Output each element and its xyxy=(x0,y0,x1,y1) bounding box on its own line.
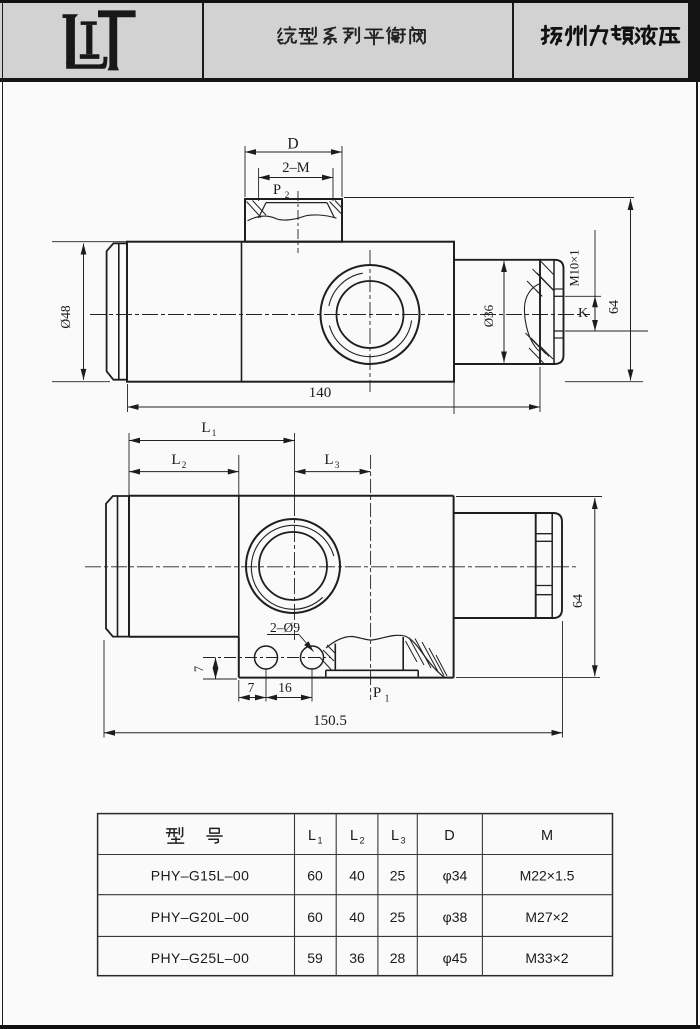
svg-text:28: 28 xyxy=(390,950,406,966)
svg-text:64: 64 xyxy=(607,300,622,314)
svg-text:2: 2 xyxy=(285,191,290,201)
svg-text:7: 7 xyxy=(192,666,206,672)
svg-text:L: L xyxy=(308,828,316,844)
svg-text:16: 16 xyxy=(278,680,292,695)
svg-text:PHY–G15L–00: PHY–G15L–00 xyxy=(151,868,250,884)
svg-text:P: P xyxy=(273,182,281,198)
svg-text:140: 140 xyxy=(309,385,332,401)
svg-text:3: 3 xyxy=(400,836,405,846)
svg-text:40: 40 xyxy=(349,909,365,925)
svg-text:φ38: φ38 xyxy=(443,909,468,925)
svg-text:L: L xyxy=(201,420,210,436)
svg-text:Ø48: Ø48 xyxy=(58,305,73,328)
svg-text:Ø36: Ø36 xyxy=(481,304,496,327)
svg-text:PHY–G25L–00: PHY–G25L–00 xyxy=(151,950,250,966)
svg-text:60: 60 xyxy=(307,909,323,925)
svg-text:2–Ø9: 2–Ø9 xyxy=(270,620,300,635)
svg-text:64: 64 xyxy=(571,594,586,608)
svg-text:K: K xyxy=(578,306,588,321)
svg-text:L: L xyxy=(324,452,333,468)
svg-text:3: 3 xyxy=(335,461,340,471)
svg-text:L: L xyxy=(391,828,399,844)
svg-text:M: M xyxy=(541,828,553,844)
svg-text:1: 1 xyxy=(317,836,322,846)
svg-text:PHY–G20L–00: PHY–G20L–00 xyxy=(151,909,250,925)
svg-text:40: 40 xyxy=(349,868,365,884)
svg-text:φ45: φ45 xyxy=(443,950,468,966)
svg-text:P: P xyxy=(373,685,381,701)
svg-text:L: L xyxy=(171,452,180,468)
svg-text:L: L xyxy=(350,828,358,844)
svg-text:M10×1: M10×1 xyxy=(568,250,582,287)
svg-text:1: 1 xyxy=(212,429,217,439)
svg-text:150.5: 150.5 xyxy=(313,713,347,729)
svg-text:M33×2: M33×2 xyxy=(525,950,568,966)
svg-text:D: D xyxy=(287,136,298,153)
svg-text:2: 2 xyxy=(182,461,187,471)
svg-text:2–M: 2–M xyxy=(282,160,310,176)
svg-text:M22×1.5: M22×1.5 xyxy=(520,868,575,884)
svg-text:25: 25 xyxy=(390,868,406,884)
svg-text:M27×2: M27×2 xyxy=(525,909,568,925)
svg-text:φ34: φ34 xyxy=(443,868,468,884)
svg-text:36: 36 xyxy=(349,950,365,966)
svg-text:59: 59 xyxy=(307,950,323,966)
svg-text:2: 2 xyxy=(359,836,364,846)
svg-text:60: 60 xyxy=(307,868,323,884)
svg-text:25: 25 xyxy=(390,909,406,925)
svg-text:D: D xyxy=(444,828,454,844)
svg-text:7: 7 xyxy=(248,680,255,695)
svg-text:1: 1 xyxy=(385,694,390,705)
